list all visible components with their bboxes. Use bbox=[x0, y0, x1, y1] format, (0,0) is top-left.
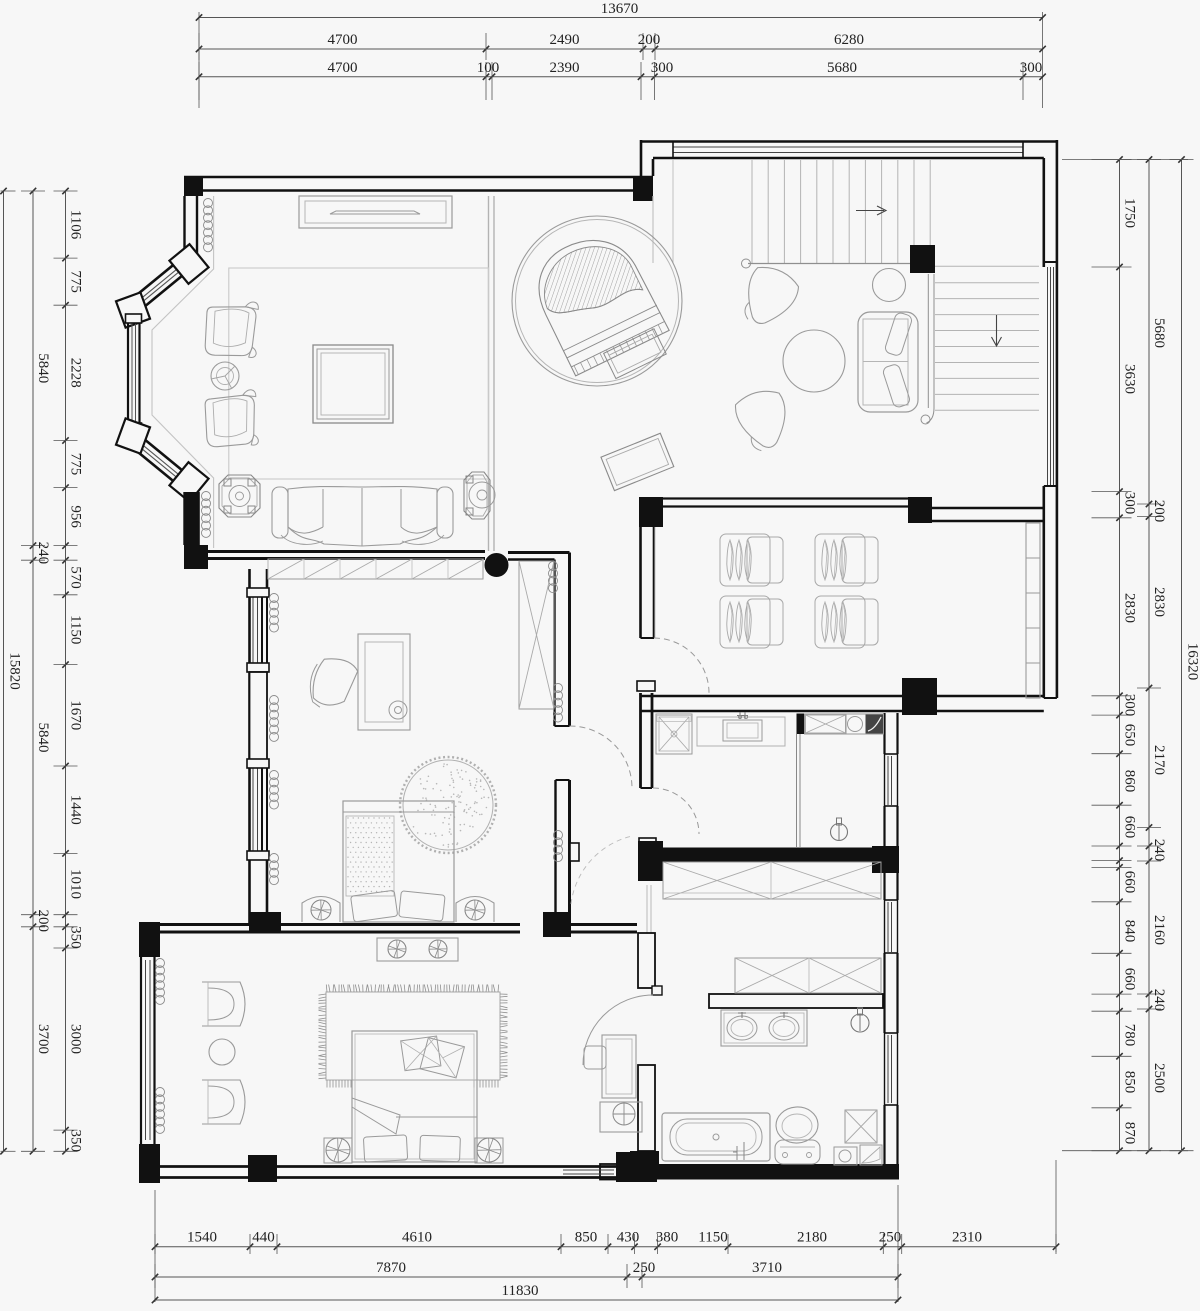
svg-text:250: 250 bbox=[633, 1260, 656, 1276]
svg-text:200: 200 bbox=[35, 909, 51, 932]
svg-text:200: 200 bbox=[638, 32, 661, 48]
svg-text:300: 300 bbox=[1122, 492, 1138, 515]
svg-text:850: 850 bbox=[1122, 1071, 1138, 1094]
svg-text:775: 775 bbox=[68, 453, 84, 476]
svg-text:4700: 4700 bbox=[328, 60, 358, 76]
svg-text:2830: 2830 bbox=[1122, 593, 1138, 623]
svg-text:200: 200 bbox=[1151, 500, 1167, 523]
svg-text:2500: 2500 bbox=[1151, 1063, 1167, 1093]
svg-text:100: 100 bbox=[477, 60, 500, 76]
svg-text:840: 840 bbox=[1122, 920, 1138, 943]
svg-text:1750: 1750 bbox=[1122, 198, 1138, 228]
svg-text:1540: 1540 bbox=[187, 1230, 217, 1246]
svg-text:1150: 1150 bbox=[68, 615, 84, 644]
svg-text:2160: 2160 bbox=[1151, 915, 1167, 945]
svg-text:5840: 5840 bbox=[35, 723, 51, 753]
svg-text:2228: 2228 bbox=[68, 358, 84, 388]
svg-text:4610: 4610 bbox=[402, 1230, 432, 1246]
svg-text:240: 240 bbox=[1151, 839, 1167, 862]
svg-text:4700: 4700 bbox=[328, 32, 358, 48]
svg-text:1010: 1010 bbox=[68, 869, 84, 899]
svg-text:7870: 7870 bbox=[376, 1260, 406, 1276]
svg-text:850: 850 bbox=[575, 1230, 598, 1246]
svg-text:2180: 2180 bbox=[797, 1230, 827, 1246]
svg-text:11830: 11830 bbox=[502, 1283, 539, 1299]
svg-text:240: 240 bbox=[35, 542, 51, 565]
svg-text:350: 350 bbox=[68, 926, 84, 949]
svg-text:15820: 15820 bbox=[7, 652, 23, 690]
svg-text:440: 440 bbox=[252, 1230, 275, 1246]
svg-text:300: 300 bbox=[651, 60, 674, 76]
svg-text:13670: 13670 bbox=[601, 1, 639, 17]
svg-text:860: 860 bbox=[1122, 770, 1138, 793]
svg-text:3630: 3630 bbox=[1122, 364, 1138, 394]
svg-text:2170: 2170 bbox=[1151, 745, 1167, 775]
svg-text:2390: 2390 bbox=[550, 60, 580, 76]
svg-text:1670: 1670 bbox=[68, 700, 84, 730]
svg-text:350: 350 bbox=[68, 1129, 84, 1152]
svg-text:660: 660 bbox=[1122, 871, 1138, 894]
svg-text:240: 240 bbox=[1151, 989, 1167, 1012]
svg-text:430: 430 bbox=[617, 1230, 640, 1246]
svg-text:250: 250 bbox=[879, 1230, 902, 1246]
svg-text:3000: 3000 bbox=[68, 1024, 84, 1054]
svg-text:660: 660 bbox=[1122, 816, 1138, 839]
svg-text:5680: 5680 bbox=[827, 60, 857, 76]
svg-text:660: 660 bbox=[1122, 968, 1138, 991]
svg-text:775: 775 bbox=[68, 270, 84, 293]
svg-text:5840: 5840 bbox=[35, 353, 51, 383]
svg-text:3700: 3700 bbox=[35, 1024, 51, 1054]
svg-text:2310: 2310 bbox=[952, 1230, 982, 1246]
svg-text:380: 380 bbox=[656, 1230, 679, 1246]
svg-text:1150: 1150 bbox=[698, 1230, 727, 1246]
svg-text:300: 300 bbox=[1020, 60, 1043, 76]
svg-text:16320: 16320 bbox=[1185, 643, 1200, 681]
svg-text:300: 300 bbox=[1122, 694, 1138, 717]
svg-text:956: 956 bbox=[68, 505, 84, 528]
svg-text:780: 780 bbox=[1122, 1024, 1138, 1047]
svg-text:5680: 5680 bbox=[1151, 318, 1167, 348]
svg-text:1106: 1106 bbox=[68, 210, 84, 240]
svg-text:2490: 2490 bbox=[550, 32, 580, 48]
svg-text:6280: 6280 bbox=[834, 32, 864, 48]
svg-text:570: 570 bbox=[68, 566, 84, 589]
svg-text:2830: 2830 bbox=[1151, 587, 1167, 617]
svg-text:3710: 3710 bbox=[752, 1260, 782, 1276]
svg-text:870: 870 bbox=[1122, 1122, 1138, 1145]
svg-text:650: 650 bbox=[1122, 724, 1138, 747]
svg-text:1440: 1440 bbox=[68, 795, 84, 825]
